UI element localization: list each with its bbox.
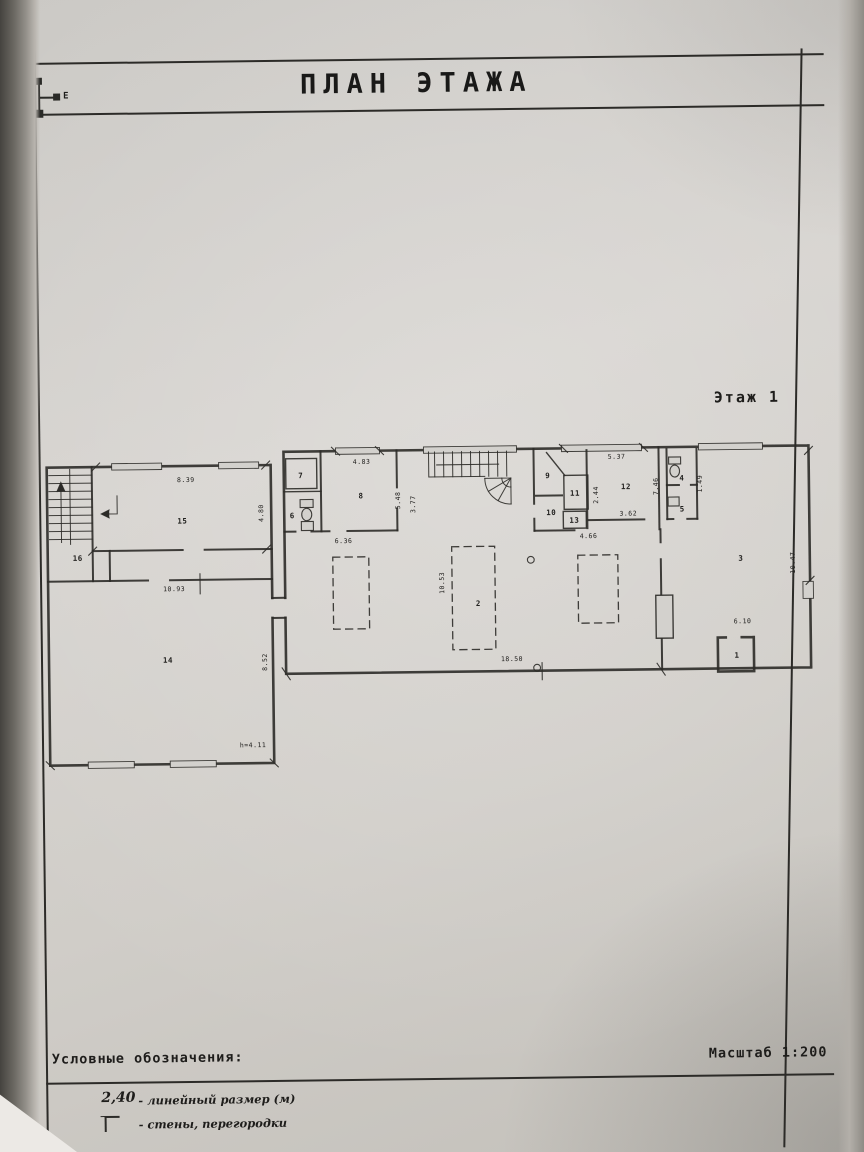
room-number: 7 — [298, 471, 303, 480]
room-number: 16 — [73, 554, 83, 563]
dimension-label: 4.80 — [257, 504, 265, 522]
legend-walls-label: - стены, перегородки — [139, 1116, 288, 1132]
room-number: 6 — [290, 511, 295, 520]
dimension-label: 3.77 — [409, 495, 417, 513]
plan-labels: 123456789101112131415168.394.8010.938.52… — [0, 0, 864, 1152]
room-number: 9 — [545, 471, 550, 480]
dimension-label: 1.49 — [696, 475, 704, 493]
dimension-label: 10.47 — [789, 552, 797, 574]
room-number: 4 — [679, 473, 684, 482]
dimension-label: 6.36 — [335, 537, 353, 545]
room-number: 15 — [177, 516, 187, 525]
scan-shadow-right — [838, 0, 864, 1152]
room-number: 3 — [738, 554, 743, 563]
room-number: 2 — [476, 599, 481, 608]
room-number: 13 — [569, 516, 579, 525]
dimension-label: 5.48 — [394, 492, 402, 510]
room-number: 10 — [546, 508, 556, 517]
room-number: 12 — [621, 482, 631, 491]
room-number: 11 — [570, 489, 580, 498]
dimension-label: 8.52 — [261, 653, 269, 671]
dimension-label: 18.50 — [501, 655, 523, 663]
dimension-label: 8.39 — [177, 476, 195, 484]
dimension-label: 10.93 — [163, 585, 185, 593]
scan-shadow-left — [0, 0, 40, 1152]
scan-content: ПЛАН ЭТАЖА Е Этаж 1 — [0, 0, 864, 1152]
dimension-label: 10.53 — [438, 572, 446, 594]
scanned-floor-plan-page: ПЛАН ЭТАЖА Е Этаж 1 — [0, 0, 864, 1152]
dimension-label: 4.83 — [353, 458, 371, 466]
legend-dimension-example: 2,40 — [101, 1090, 135, 1106]
room-number: 14 — [163, 656, 173, 665]
scale-label: Масштаб 1:200 — [709, 1044, 828, 1061]
dimension-label: 2.44 — [592, 486, 600, 504]
legend-title: Условные обозначения: — [52, 1049, 244, 1067]
dimension-label: 4.66 — [580, 532, 598, 540]
dimension-label: 5.37 — [608, 453, 626, 461]
room-number: 8 — [358, 491, 363, 500]
dimension-label: 7.46 — [652, 477, 660, 495]
dimension-label: 3.62 — [619, 509, 637, 517]
room-number: 5 — [680, 504, 685, 513]
wall-corner-icon — [105, 1116, 120, 1132]
legend-dimension-label: - линейный размер (м) — [138, 1092, 295, 1108]
room-number: 1 — [734, 651, 739, 660]
dimension-label: 6.10 — [734, 617, 752, 625]
dimension-label: h=4.11 — [240, 741, 267, 749]
